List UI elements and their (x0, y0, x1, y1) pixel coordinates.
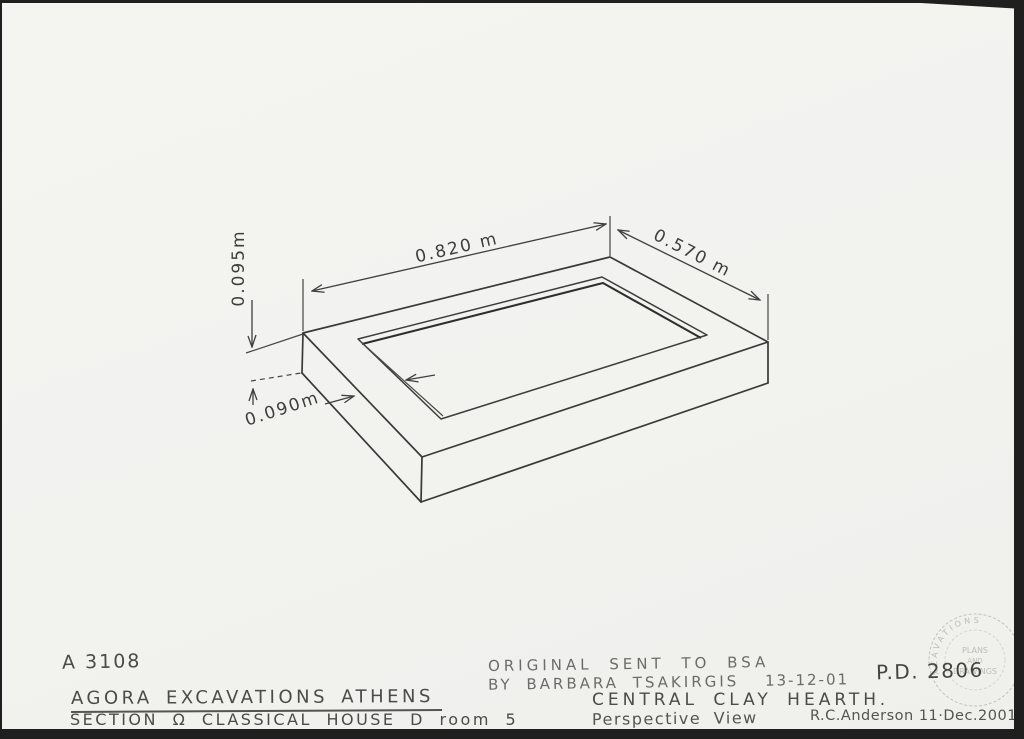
site-title: AGORA EXCAVATIONS ATHENS (71, 686, 442, 713)
credit-line: R.C.Anderson 11·Dec.2001 (810, 708, 1014, 724)
slab-bottom-right-edge (421, 383, 768, 502)
dimension-rim: 0.090m (243, 388, 354, 431)
recess-rim (358, 277, 707, 419)
width-dimension-label: 0.570 m (650, 225, 734, 281)
stamp-line1: PLANS (962, 646, 988, 655)
height-extension-dashed (251, 373, 301, 381)
height-extension-top (246, 334, 303, 353)
slab-front-vertical-edge (421, 457, 422, 502)
rim-inner-arrow (406, 375, 435, 380)
recess-lip-left (361, 342, 443, 416)
inventory-number: A 3108 (62, 650, 142, 673)
height-dimension-label: 0.095m (229, 229, 249, 306)
sheet-content: 0.820 m 0.570 m 0.095m 0.090m (2, 3, 1014, 729)
stamp-arc-text: EXCAVATIONS (2, 3, 982, 676)
rim-dimension-label: 0.090m (243, 388, 323, 431)
scanned-sheet-background: { "labels": { "inventory_no": "A 3108", … (0, 0, 1024, 739)
recess-lip-shadow (362, 283, 701, 344)
hearth-recess (358, 277, 707, 419)
drawing-number: P.D. 2806 (876, 658, 984, 685)
length-dimension-label: 0.820 m (413, 229, 500, 268)
archive-stamp: EXCAVATIONS PLANS AND DRAWINGS (2, 3, 1014, 706)
subject-title: CENTRAL CLAY HEARTH. (592, 690, 889, 710)
dimension-height: 0.095m (229, 229, 303, 405)
slab-left-vertical-edge (302, 333, 303, 373)
hearth-perspective-drawing: 0.820 m 0.570 m 0.095m 0.090m (2, 3, 1014, 729)
paper-sheet: 0.820 m 0.570 m 0.095m 0.090m (2, 3, 1014, 729)
dimension-width: 0.570 m (618, 225, 768, 340)
svg-text:EXCAVATIONS: EXCAVATIONS (2, 3, 982, 676)
note-date: 13-12-01 (765, 670, 849, 689)
view-label: Perspective View (592, 708, 758, 729)
slab-top-face (303, 257, 768, 457)
rim-arrow (325, 396, 354, 404)
location-line: SECTION Ω CLASSICAL HOUSE D room 5 (70, 710, 518, 729)
